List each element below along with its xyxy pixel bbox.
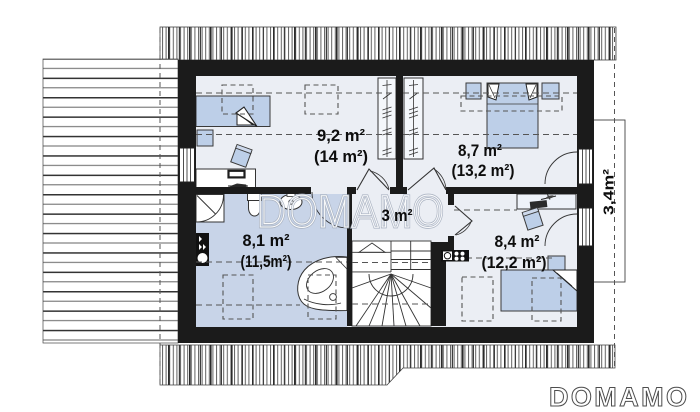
svg-text:3,4m²: 3,4m² — [600, 169, 617, 215]
svg-text:DOMAMO: DOMAMO — [549, 382, 689, 412]
svg-text:(14 m²): (14 m²) — [314, 147, 368, 166]
svg-text:3 m²: 3 m² — [382, 206, 413, 225]
svg-text:(11,5m²): (11,5m²) — [241, 252, 292, 271]
svg-text:8,4 m²: 8,4 m² — [495, 232, 540, 251]
svg-text:DOMAMO: DOMAMO — [257, 187, 444, 238]
svg-text:9,2 m²: 9,2 m² — [317, 126, 365, 145]
svg-text:8,7 m²: 8,7 m² — [458, 141, 502, 160]
svg-text:8,1 m²: 8,1 m² — [243, 231, 290, 250]
svg-text:(13,2 m²): (13,2 m²) — [452, 161, 515, 180]
svg-text:(12,2 m²): (12,2 m²) — [482, 253, 547, 272]
